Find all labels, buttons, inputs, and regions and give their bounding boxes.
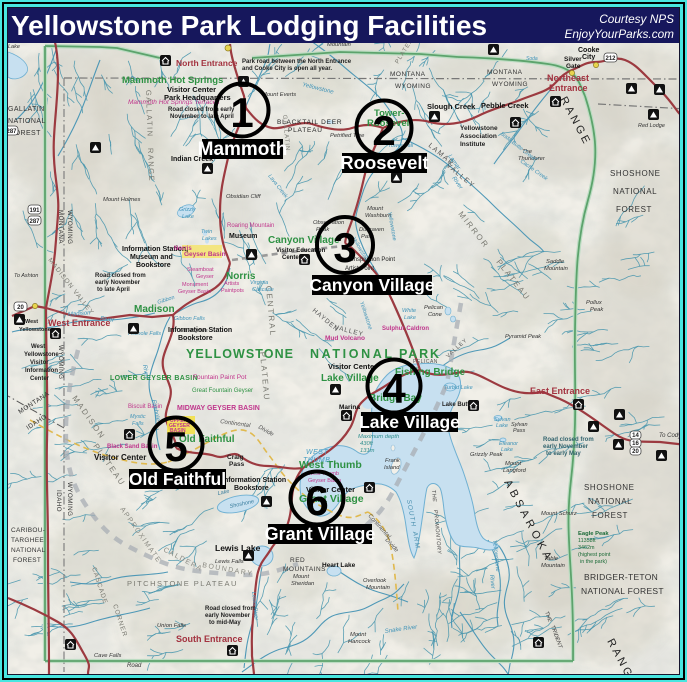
svg-text:Mountain: Mountain [544, 266, 568, 272]
svg-text:Paintpots: Paintpots [221, 288, 244, 294]
svg-text:Lakes: Lakes [202, 236, 217, 242]
svg-text:Museum: Museum [229, 233, 257, 240]
svg-text:to mid-May: to mid-May [209, 620, 241, 626]
svg-text:Mount Holmes: Mount Holmes [103, 197, 140, 203]
svg-text:287: 287 [8, 129, 17, 135]
svg-text:Mystic: Mystic [130, 414, 146, 420]
svg-text:Road closed from: Road closed from [543, 437, 594, 443]
svg-text:White: White [402, 308, 416, 314]
svg-text:East Entrance: East Entrance [530, 386, 590, 396]
svg-text:Craig: Craig [227, 454, 244, 461]
svg-text:West: West [25, 319, 38, 325]
svg-text:212: 212 [605, 56, 616, 62]
svg-text:Entrance: Entrance [549, 83, 588, 93]
svg-text:Eagle Peak: Eagle Peak [578, 531, 609, 537]
svg-text:Canyon Village: Canyon Village [309, 275, 434, 295]
svg-text:Mammoth: Mammoth [198, 139, 288, 160]
svg-text:Mount Schurz: Mount Schurz [541, 511, 577, 517]
svg-text:Pass: Pass [513, 428, 525, 434]
svg-text:Pebble Creek: Pebble Creek [481, 101, 529, 110]
svg-text:TARGHEE: TARGHEE [11, 537, 44, 544]
svg-text:Slough Creek: Slough Creek [427, 102, 476, 111]
svg-text:GALLATIN: GALLATIN [144, 90, 155, 138]
svg-text:Falls: Falls [132, 421, 144, 427]
svg-text:MONTANA: MONTANA [487, 69, 523, 76]
svg-text:Cascade: Cascade [252, 287, 274, 293]
svg-text:NATIONAL: NATIONAL [310, 347, 392, 361]
svg-text:Cone: Cone [428, 312, 443, 318]
svg-text:Information Station: Information Station [222, 477, 286, 484]
svg-text:Northeast: Northeast [547, 73, 589, 83]
svg-text:Bookstore: Bookstore [178, 335, 213, 342]
svg-text:Museum and: Museum and [130, 254, 173, 261]
svg-text:South Entrance: South Entrance [176, 634, 243, 644]
svg-text:Grizzly: Grizzly [179, 207, 197, 213]
svg-text:FOREST: FOREST [616, 205, 652, 214]
svg-text:RANGE: RANGE [146, 148, 156, 182]
svg-text:20: 20 [17, 305, 24, 311]
svg-text:Visitor: Visitor [30, 360, 49, 366]
svg-text:To Ashton: To Ashton [14, 273, 38, 279]
svg-text:Roaring Mountain: Roaring Mountain [227, 223, 274, 229]
svg-text:Mountain: Mountain [366, 585, 390, 591]
svg-text:NATIONAL: NATIONAL [11, 547, 46, 554]
svg-text:BLACKTAIL DEER: BLACKTAIL DEER [277, 119, 342, 126]
svg-text:MIDWAY GEYSER BASIN: MIDWAY GEYSER BASIN [177, 405, 260, 412]
svg-text:RED: RED [290, 557, 305, 564]
svg-text:Lake Village: Lake Village [359, 412, 460, 432]
svg-text:Sheridan: Sheridan [291, 581, 314, 587]
svg-text:Geyser Basin: Geyser Basin [184, 251, 226, 258]
svg-text:in the park): in the park) [580, 559, 607, 565]
svg-text:MONTANA: MONTANA [57, 210, 64, 244]
svg-text:430ft: 430ft [360, 441, 373, 447]
svg-text:Sulphur Caldron: Sulphur Caldron [382, 326, 429, 332]
svg-text:Association: Association [460, 133, 497, 140]
svg-text:Mt Haynes: Mt Haynes [180, 328, 208, 334]
svg-text:1: 1 [230, 89, 253, 136]
svg-text:and Cooke City is open all yea: and Cooke City is open all year. [242, 66, 332, 72]
svg-text:Bookstore: Bookstore [234, 485, 269, 492]
svg-text:Lake: Lake [501, 447, 513, 453]
svg-text:Heart Lake: Heart Lake [322, 562, 356, 569]
svg-text:Union Falls: Union Falls [157, 623, 186, 629]
svg-text:THUMB: THUMB [303, 457, 330, 464]
svg-text:Geyser Basin: Geyser Basin [178, 289, 211, 295]
svg-text:To Cody: To Cody [659, 433, 679, 439]
svg-text:Center: Center [30, 376, 50, 382]
svg-text:November to late April: November to late April [170, 114, 234, 120]
svg-text:Pass: Pass [229, 461, 245, 468]
svg-text:Pyramid Peak: Pyramid Peak [505, 334, 542, 340]
svg-text:Yellowstone: Yellowstone [460, 125, 498, 132]
svg-text:Island: Island [384, 465, 400, 471]
svg-text:MOUNTAINS: MOUNTAINS [283, 566, 326, 573]
svg-text:5: 5 [164, 423, 187, 470]
svg-text:Road closed from: Road closed from [95, 273, 146, 279]
svg-text:Monument: Monument [182, 282, 208, 288]
svg-text:Yellowstone: Yellowstone [24, 352, 59, 358]
svg-text:Mount: Mount [367, 206, 384, 212]
svg-text:THE: THE [430, 490, 437, 503]
svg-text:Hancock: Hancock [348, 639, 372, 645]
svg-text:Twin: Twin [201, 229, 212, 235]
svg-text:West: West [31, 344, 45, 350]
svg-text:Grant Village: Grant Village [265, 524, 376, 544]
svg-text:NATIONAL: NATIONAL [613, 187, 657, 196]
svg-text:early November: early November [205, 613, 251, 619]
svg-text:FOREST: FOREST [13, 557, 41, 564]
svg-text:Mount: Mount [505, 461, 522, 467]
svg-text:Inspiration Point: Inspiration Point [352, 257, 395, 263]
svg-text:Roosevelt: Roosevelt [340, 152, 428, 173]
svg-text:Park road between the North En: Park road between the North Entrance [242, 59, 352, 65]
svg-text:(highest point: (highest point [578, 552, 611, 558]
svg-text:Cave Falls: Cave Falls [94, 653, 121, 659]
svg-text:Peak: Peak [590, 307, 604, 313]
svg-text:NATIONAL: NATIONAL [588, 497, 632, 506]
svg-text:Soda: Soda [526, 56, 538, 62]
svg-text:Marina: Marina [339, 404, 360, 411]
svg-text:Silver: Silver [564, 56, 582, 63]
svg-text:Bookstore: Bookstore [136, 262, 171, 269]
svg-text:MONTANA: MONTANA [390, 71, 426, 78]
svg-text:Artists: Artists [224, 281, 240, 287]
svg-text:LOWER GEYSER BASIN: LOWER GEYSER BASIN [110, 375, 198, 382]
svg-text:Visitor Center: Visitor Center [328, 362, 377, 371]
svg-text:Turbid Lake: Turbid Lake [444, 385, 473, 391]
svg-text:Mount: Mount [350, 632, 367, 638]
svg-text:Obsidian Cliff: Obsidian Cliff [226, 194, 262, 200]
svg-text:Lake: Lake [404, 315, 416, 321]
svg-text:Frank: Frank [385, 458, 401, 464]
svg-text:287: 287 [29, 219, 40, 225]
svg-text:Gibbon Falls: Gibbon Falls [174, 316, 205, 322]
svg-text:11358ft: 11358ft [578, 538, 596, 544]
svg-text:Yellowstone: Yellowstone [19, 327, 51, 333]
svg-text:BRIDGER-TETON: BRIDGER-TETON [584, 572, 658, 582]
svg-text:GALLATIN: GALLATIN [8, 106, 45, 113]
svg-text:Saddle: Saddle [546, 259, 565, 265]
svg-text:to late April: to late April [97, 287, 130, 293]
svg-text:Overlook: Overlook [363, 578, 387, 584]
svg-text:Steamboat: Steamboat [187, 267, 214, 273]
svg-text:3: 3 [333, 224, 356, 271]
svg-text:Geyser: Geyser [196, 274, 214, 280]
svg-text:Road closed from: Road closed from [205, 606, 256, 612]
svg-text:Old Faithful: Old Faithful [129, 469, 226, 489]
svg-text:Fountain Paint Pot: Fountain Paint Pot [193, 374, 247, 381]
svg-text:3462m: 3462m [578, 545, 595, 551]
svg-text:Norris: Norris [174, 246, 192, 252]
svg-text:PELICAN: PELICAN [413, 359, 438, 365]
svg-text:16: 16 [632, 441, 639, 447]
svg-text:Grizzly Peak: Grizzly Peak [470, 452, 504, 458]
svg-text:Center: Center [282, 255, 302, 261]
svg-text:Information: Information [25, 368, 58, 374]
svg-text:Lake: Lake [496, 423, 508, 429]
svg-text:Great Fountain Geyser: Great Fountain Geyser [192, 388, 253, 394]
svg-text:early November: early November [95, 280, 141, 286]
svg-text:to early May: to early May [546, 451, 581, 457]
svg-text:Canyon Village: Canyon Village [268, 235, 340, 246]
svg-text:Virginia: Virginia [250, 280, 268, 286]
svg-text:20: 20 [632, 449, 639, 455]
svg-text:CARIBOU-: CARIBOU- [11, 527, 45, 534]
svg-text:Pelican: Pelican [424, 305, 443, 311]
svg-text:IDAHO: IDAHO [55, 490, 62, 512]
svg-text:PITCHSTONE PLATEAU: PITCHSTONE PLATEAU [127, 579, 238, 588]
svg-text:WYOMING: WYOMING [57, 345, 64, 379]
svg-text:Maximum depth: Maximum depth [358, 434, 399, 440]
svg-text:WYOMING: WYOMING [66, 482, 73, 516]
svg-text:Mount: Mount [293, 574, 310, 580]
svg-text:North Entrance: North Entrance [176, 58, 238, 68]
svg-text:NATIONAL FOREST: NATIONAL FOREST [581, 586, 664, 596]
svg-text:2: 2 [372, 107, 395, 154]
svg-text:Mountain: Mountain [327, 43, 351, 48]
svg-text:Cooke: Cooke [578, 47, 600, 54]
svg-text:14: 14 [632, 433, 639, 439]
svg-text:WYOMING: WYOMING [395, 83, 431, 90]
svg-text:WYOMING: WYOMING [492, 81, 528, 88]
svg-text:NATIONAL: NATIONAL [8, 118, 46, 125]
svg-text:WYOMING: WYOMING [66, 210, 73, 244]
svg-text:YELLOWSTONE: YELLOWSTONE [186, 347, 293, 361]
svg-text:City: City [582, 54, 595, 61]
svg-text:Gate: Gate [566, 63, 581, 70]
svg-text:SHOSHONE: SHOSHONE [584, 483, 635, 492]
svg-text:6: 6 [305, 477, 328, 524]
svg-text:Road closed from early: Road closed from early [168, 107, 235, 113]
svg-text:PLATEAU: PLATEAU [288, 127, 323, 134]
svg-text:FOREST: FOREST [592, 511, 628, 520]
svg-text:131m: 131m [360, 448, 375, 454]
svg-text:Road: Road [127, 663, 142, 669]
svg-text:4: 4 [382, 365, 406, 412]
svg-text:early November: early November [543, 444, 589, 450]
svg-text:WEST: WEST [306, 449, 328, 456]
svg-text:Lake: Lake [8, 44, 20, 50]
svg-text:191: 191 [29, 208, 40, 214]
svg-text:Institute: Institute [460, 141, 486, 148]
svg-text:Madison: Madison [134, 304, 175, 315]
svg-text:Red Lodge: Red Lodge [638, 123, 665, 129]
svg-text:Pollux: Pollux [586, 300, 603, 306]
svg-text:Langford: Langford [503, 468, 527, 474]
svg-text:Lake: Lake [182, 214, 194, 220]
svg-text:SHOSHONE: SHOSHONE [610, 169, 661, 178]
